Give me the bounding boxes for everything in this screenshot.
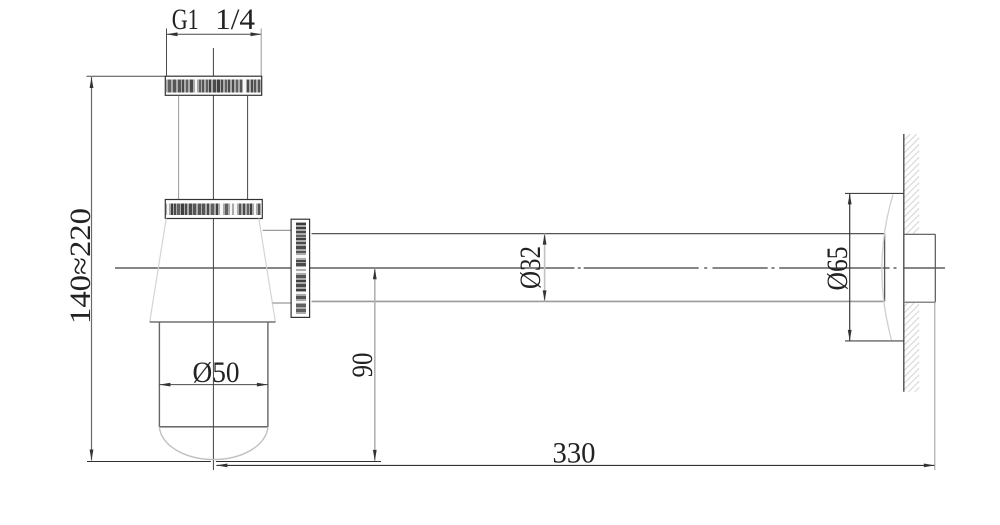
svg-text:1/4: 1/4 <box>215 3 255 36</box>
svg-text:330: 330 <box>553 437 596 470</box>
svg-text:140≈220: 140≈220 <box>64 208 97 324</box>
svg-text:Ø65: Ø65 <box>821 247 854 291</box>
svg-text:G1: G1 <box>172 3 199 36</box>
svg-text:Ø32: Ø32 <box>514 246 547 289</box>
svg-text:90: 90 <box>346 353 379 378</box>
svg-text:Ø50: Ø50 <box>193 356 240 389</box>
